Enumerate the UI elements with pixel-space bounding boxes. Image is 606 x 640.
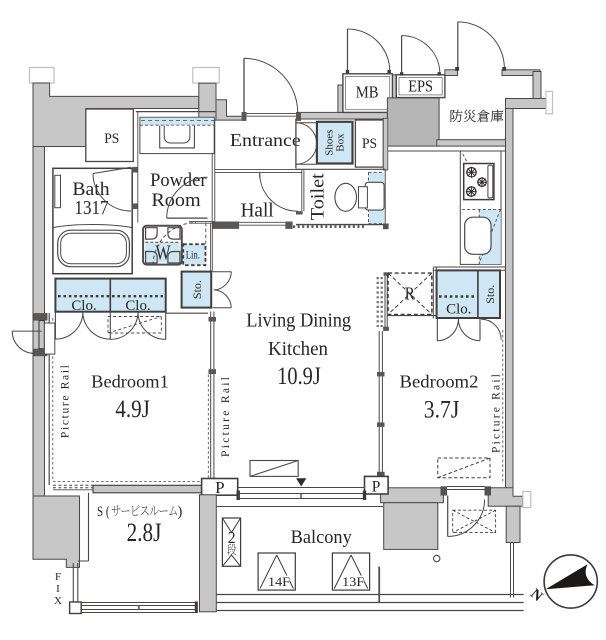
svg-text:Balcony: Balcony [291,527,353,548]
svg-text:Kitchen: Kitchen [268,339,328,360]
svg-text:Powder: Powder [150,170,207,191]
svg-text:EPS: EPS [408,77,433,96]
svg-text:P: P [215,478,224,497]
svg-text:13F: 13F [342,574,364,589]
svg-text:1317: 1317 [74,198,108,219]
svg-text:PS: PS [362,136,377,152]
svg-text:14F: 14F [268,574,290,589]
svg-text:Clo.: Clo. [71,298,96,314]
svg-text:W: W [156,241,171,265]
svg-text:X: X [54,595,62,607]
svg-text:Living Dining: Living Dining [246,311,351,332]
svg-text:Entrance: Entrance [230,130,301,150]
svg-text:S (: S ( [97,504,110,520]
svg-text:Clo.: Clo. [446,302,471,318]
svg-text:Bedroom1: Bedroom1 [91,371,169,391]
svg-text:2.8J: 2.8J [127,518,162,547]
svg-text:4.9J: 4.9J [115,396,150,423]
svg-text:I: I [56,583,60,595]
svg-text:Clo.: Clo. [125,298,150,314]
svg-text:PS: PS [104,131,119,147]
svg-text:2: 2 [228,528,236,547]
svg-text:Hall: Hall [241,199,274,221]
svg-text:Sto.: Sto. [483,285,497,304]
svg-text:Toilet: Toilet [309,172,329,220]
svg-text:10.9J: 10.9J [277,363,321,390]
svg-text:Bedroom2: Bedroom2 [400,372,479,392]
svg-text:F: F [55,571,61,583]
svg-text:): ) [178,504,183,520]
svg-text:R: R [405,284,415,304]
svg-text:Sto.: Sto. [190,280,204,299]
svg-text:P: P [372,479,381,496]
svg-text:Room: Room [151,190,201,211]
svg-text:Lin.: Lin. [186,250,200,262]
svg-text:3.7J: 3.7J [424,397,460,424]
svg-text:Box: Box [335,133,347,152]
svg-text:MB: MB [356,83,379,102]
